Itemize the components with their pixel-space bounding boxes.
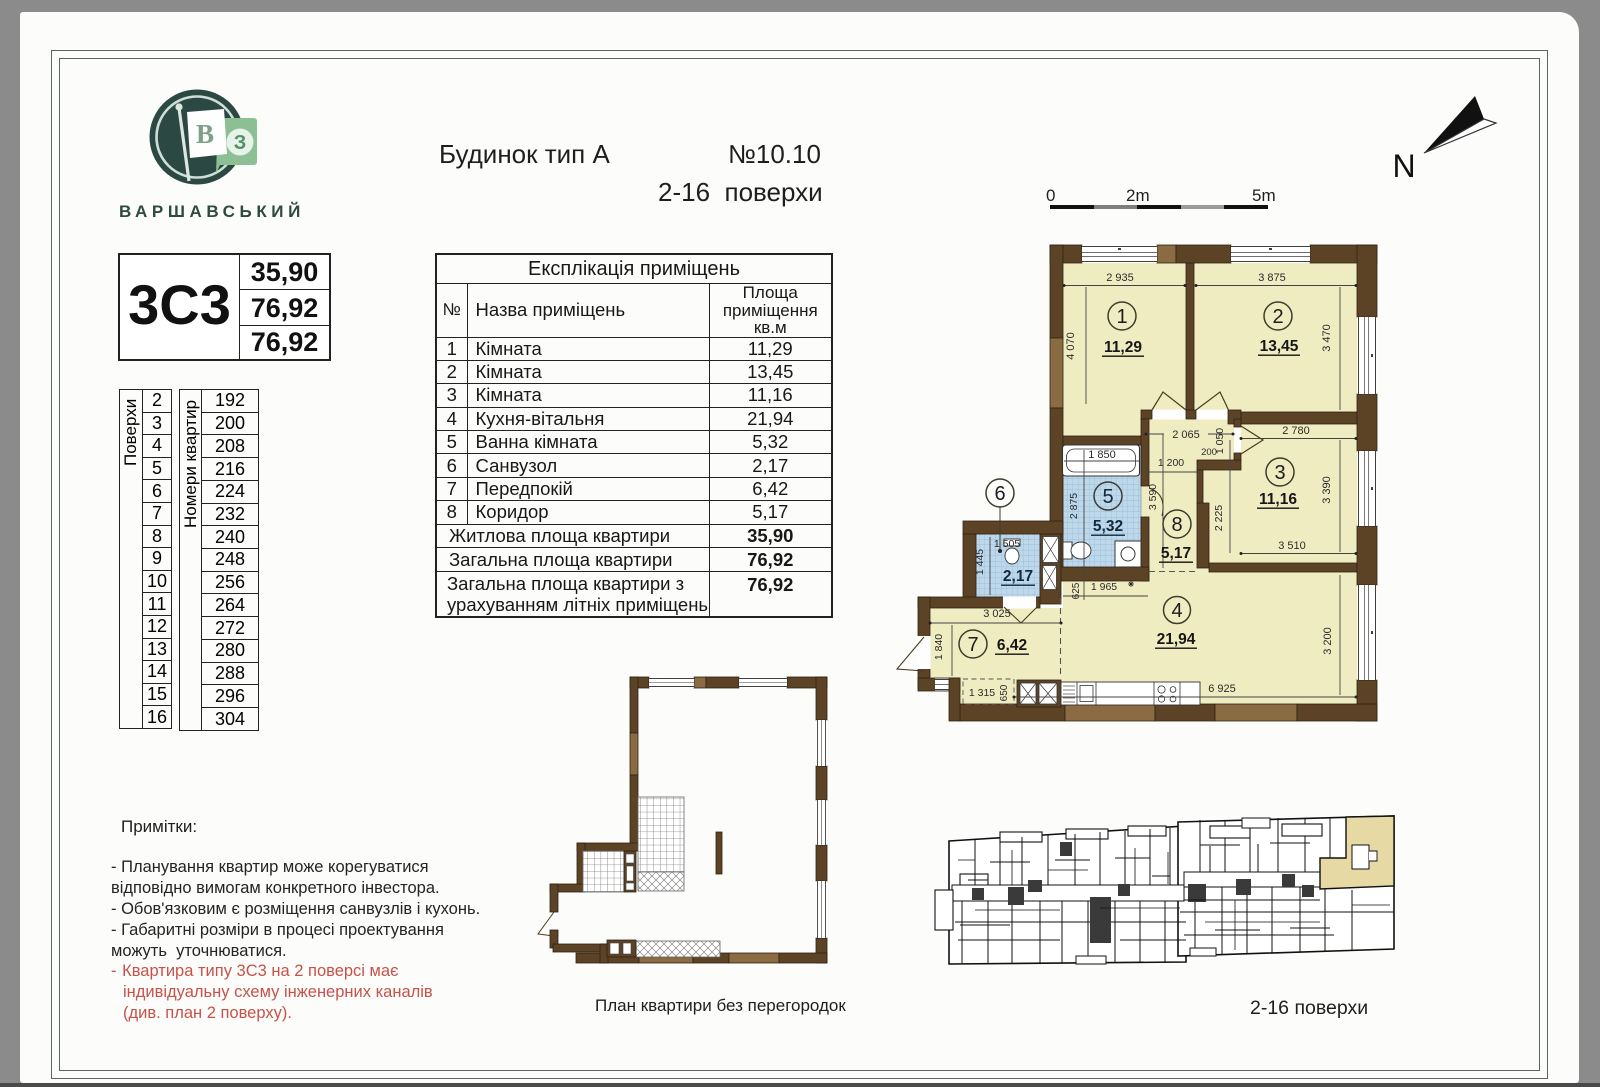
svg-text:3 510: 3 510 (1278, 540, 1306, 552)
svg-text:200: 200 (1201, 447, 1217, 458)
svg-text:7: 7 (967, 634, 978, 656)
svg-text:2 875: 2 875 (1068, 493, 1080, 519)
svg-text:5: 5 (1102, 486, 1113, 508)
svg-text:2: 2 (1272, 306, 1283, 328)
svg-text:650: 650 (999, 684, 1010, 701)
svg-text:4: 4 (1171, 600, 1182, 622)
svg-text:1 200: 1 200 (1158, 457, 1184, 469)
svg-text:6: 6 (994, 483, 1005, 505)
svg-text:1: 1 (1116, 306, 1127, 328)
svg-text:3: 3 (1274, 462, 1285, 484)
svg-text:21,94: 21,94 (1157, 631, 1196, 648)
svg-text:3 390: 3 390 (1321, 476, 1333, 504)
svg-text:3 875: 3 875 (1258, 272, 1286, 284)
svg-text:6 925: 6 925 (1208, 683, 1236, 695)
svg-text:2 225: 2 225 (1213, 505, 1225, 531)
svg-text:6,42: 6,42 (997, 637, 1027, 654)
svg-text:8: 8 (1171, 514, 1182, 536)
svg-text:3 590: 3 590 (1147, 484, 1159, 510)
svg-text:2 935: 2 935 (1106, 272, 1134, 284)
svg-text:2 065: 2 065 (1172, 429, 1200, 441)
svg-text:3 025: 3 025 (983, 608, 1011, 620)
svg-text:3 200: 3 200 (1322, 627, 1334, 655)
svg-text:11,16: 11,16 (1259, 491, 1297, 508)
svg-text:13,45: 13,45 (1260, 338, 1299, 355)
svg-text:4 070: 4 070 (1065, 332, 1077, 360)
svg-text:5,32: 5,32 (1093, 518, 1123, 535)
svg-text:625: 625 (1071, 582, 1082, 599)
svg-text:1 315: 1 315 (969, 687, 995, 699)
svg-text:1 505: 1 505 (994, 538, 1020, 550)
svg-text:1 850: 1 850 (1088, 449, 1116, 461)
svg-text:11,29: 11,29 (1104, 339, 1142, 356)
svg-text:1 445: 1 445 (974, 549, 986, 575)
svg-text:1 840: 1 840 (933, 634, 945, 660)
svg-text:3 470: 3 470 (1321, 324, 1333, 352)
svg-text:2 780: 2 780 (1282, 425, 1310, 437)
svg-text:5,17: 5,17 (1161, 545, 1191, 562)
svg-text:1 965: 1 965 (1091, 581, 1117, 593)
svg-text:2,17: 2,17 (1003, 568, 1033, 585)
